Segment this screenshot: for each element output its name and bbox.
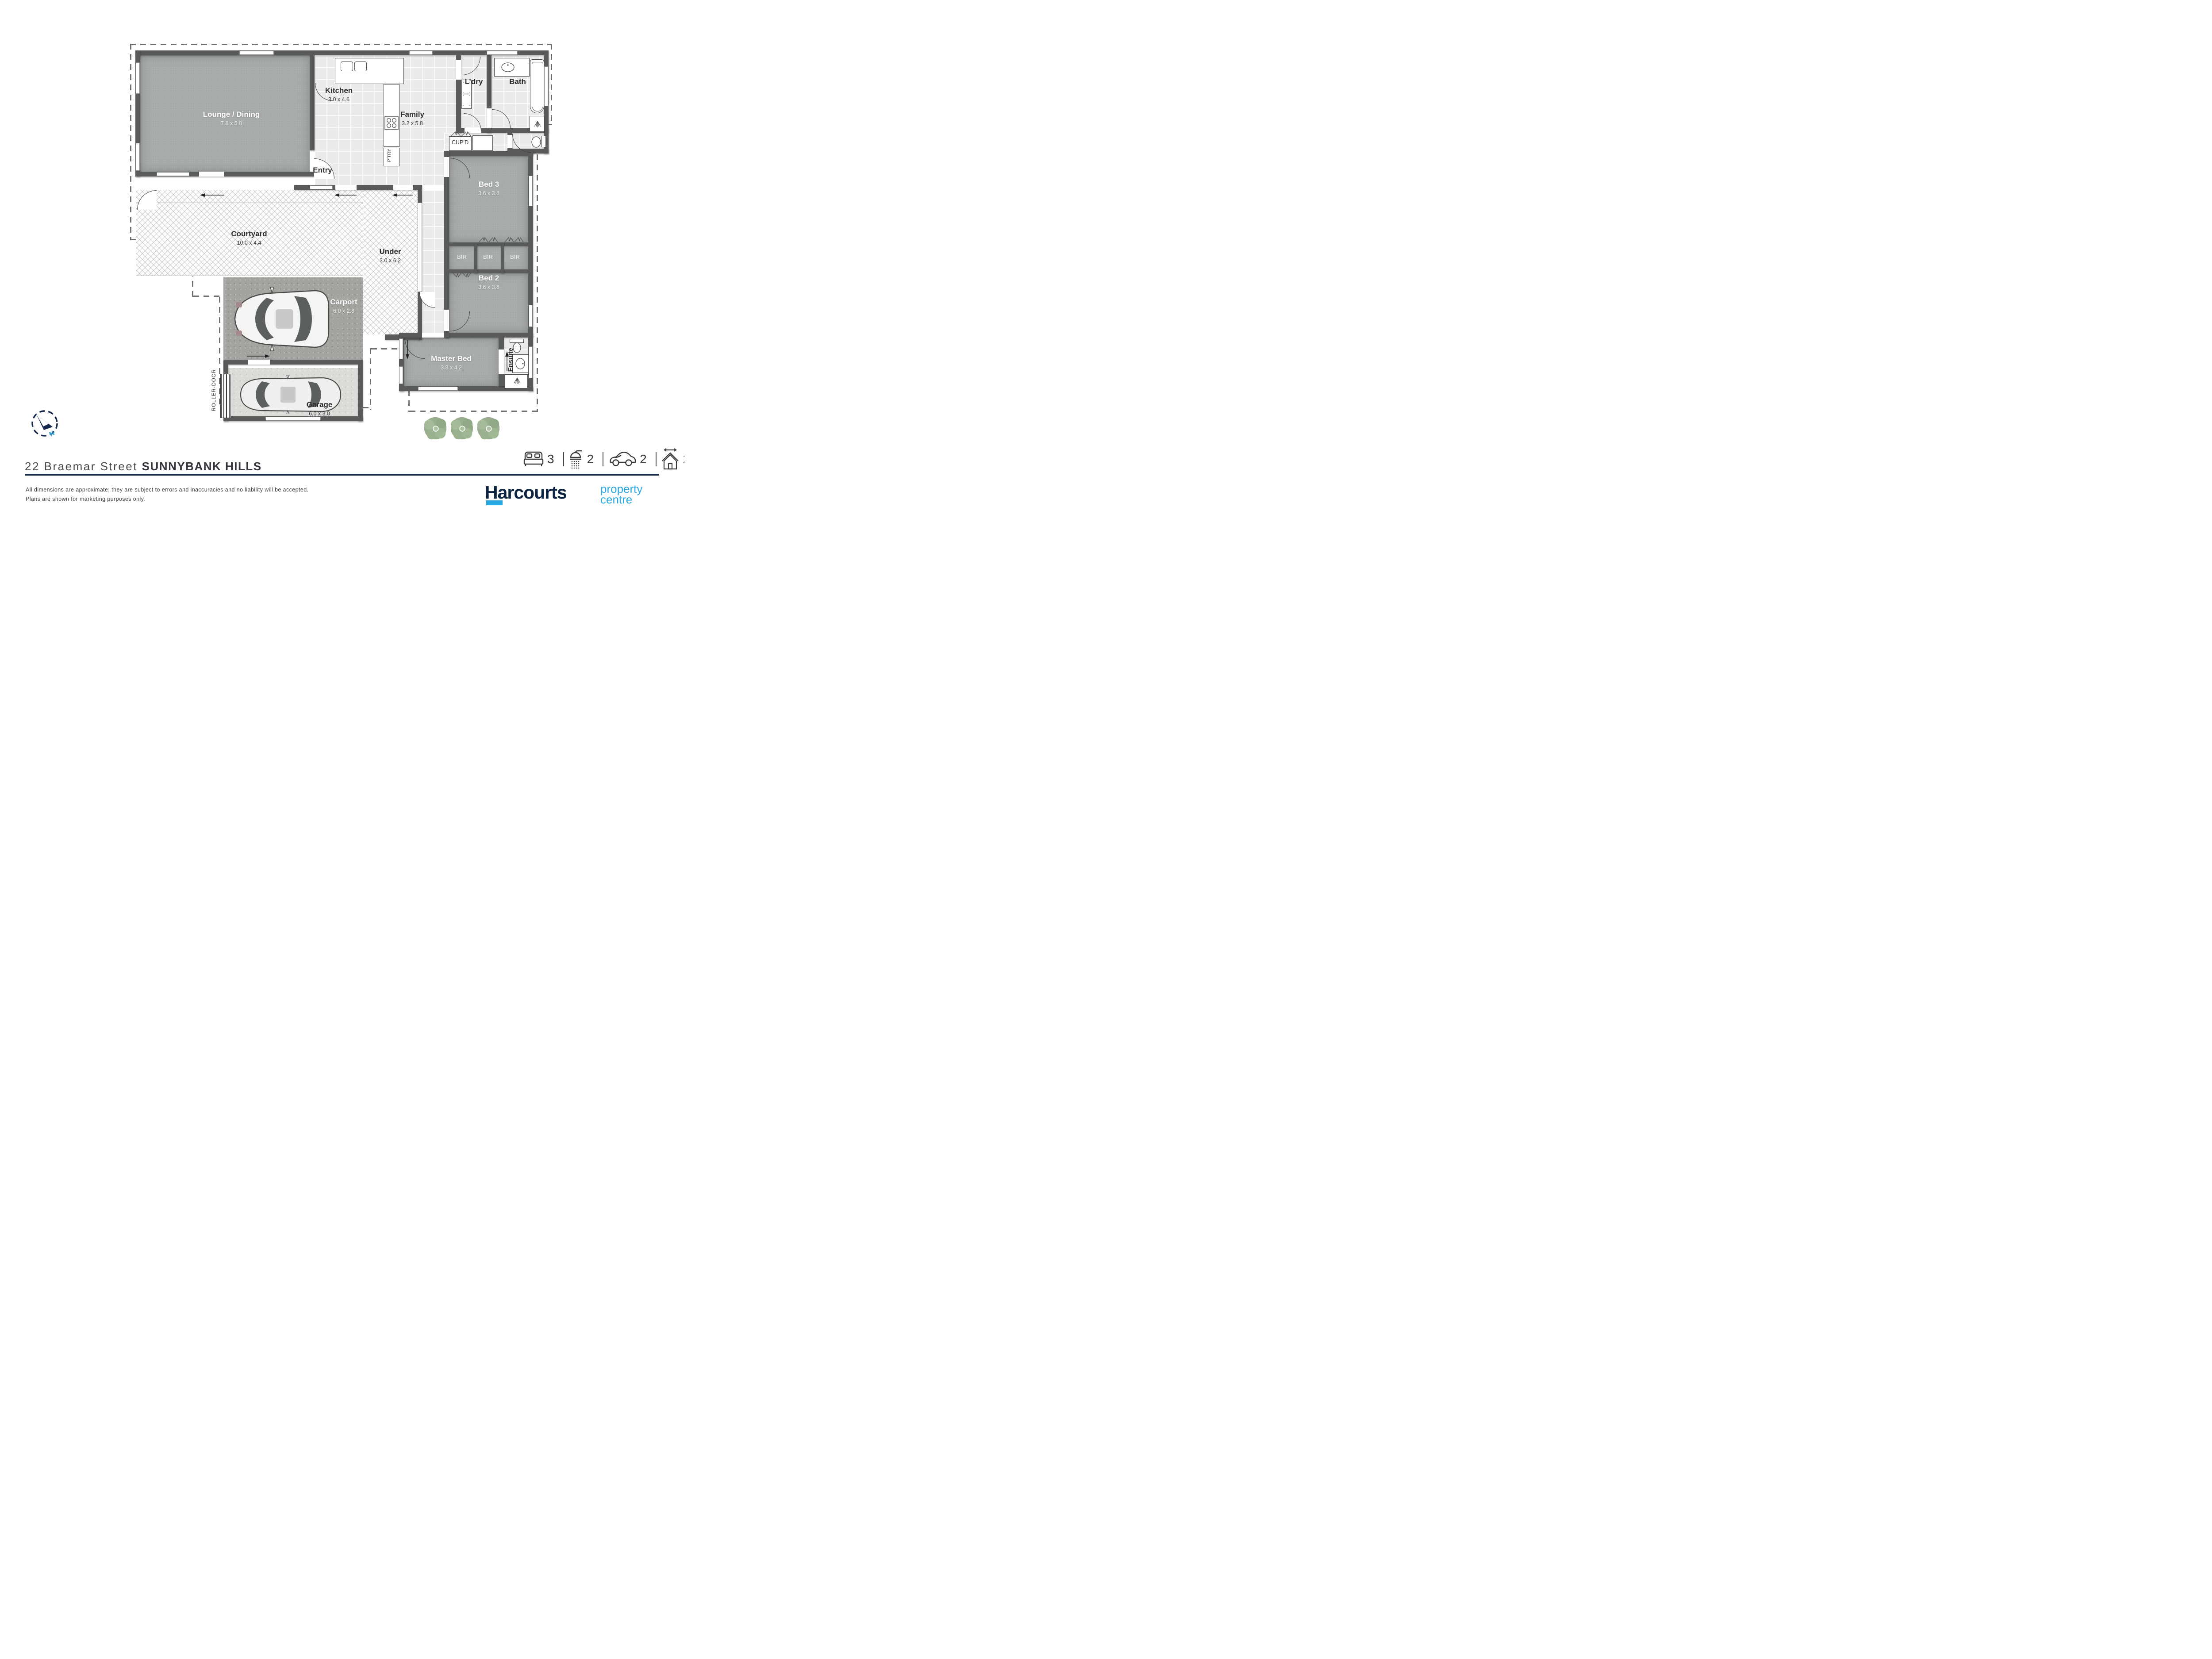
room-label-ensuite: Ensuite bbox=[507, 348, 515, 372]
door-gap-wc bbox=[507, 135, 512, 148]
room-label-family: Family3.2 x 5.8 bbox=[400, 111, 424, 127]
door-gap-bed2 bbox=[444, 310, 449, 331]
door-gap-entry bbox=[335, 185, 357, 190]
wall-bir-sep bbox=[474, 242, 477, 273]
shower-icon bbox=[568, 450, 584, 469]
hall-floor bbox=[422, 190, 444, 333]
stove-icon bbox=[384, 116, 399, 130]
wall-bir-top bbox=[449, 242, 528, 246]
brand-logo-block bbox=[486, 500, 503, 505]
window-master bbox=[399, 366, 403, 384]
wall-garage-east bbox=[358, 365, 363, 421]
room-label-bed3: Bed 33.6 x 3.8 bbox=[478, 180, 499, 197]
ensuite-basin-icon bbox=[515, 357, 526, 370]
window-bed2 bbox=[529, 305, 533, 327]
label-bir: BIR bbox=[483, 254, 493, 260]
area-value: 266m2 bbox=[683, 452, 684, 466]
bifold-marks bbox=[479, 237, 498, 242]
address-suburb: SUNNYBANK HILLS bbox=[142, 460, 262, 473]
slide-arrow-left bbox=[392, 193, 413, 197]
wall-bed2-south bbox=[444, 333, 533, 338]
slide-arrow-right bbox=[247, 354, 270, 358]
floor-plan: P’TRY ROLLER-DOOR bbox=[0, 0, 684, 447]
car-icon bbox=[608, 452, 636, 467]
stats-divider bbox=[603, 452, 603, 466]
boundary-top bbox=[130, 44, 552, 45]
window bbox=[310, 185, 333, 189]
window bbox=[487, 51, 518, 55]
area-icon bbox=[661, 448, 680, 470]
address-street: 22 Braemar Street bbox=[25, 460, 138, 473]
ensuite-shower-head-icon bbox=[512, 376, 522, 386]
kitchen-sink bbox=[354, 61, 367, 71]
kitchen-sink bbox=[341, 61, 353, 71]
room-label-entry: Entry bbox=[313, 166, 332, 175]
baths-count: 2 bbox=[587, 452, 594, 466]
boundary-bottom-right bbox=[410, 411, 538, 412]
door-gap-ensuite bbox=[499, 349, 504, 374]
window-master-south bbox=[418, 387, 458, 391]
boundary-left bbox=[130, 44, 131, 240]
pantry-label: P’TRY bbox=[387, 149, 392, 162]
room-label-laundry: L’dry bbox=[465, 78, 483, 86]
kitchen-bench bbox=[384, 84, 399, 147]
ensuite-cistern bbox=[510, 339, 524, 343]
bath-basin-icon bbox=[500, 61, 516, 73]
room-label-lounge: Lounge / Dining7.8 x 5.8 bbox=[203, 111, 260, 127]
room-label-master: Master Bed3.8 x 4.2 bbox=[431, 355, 472, 371]
slide-arrow-left bbox=[200, 193, 224, 197]
door-gap bbox=[199, 172, 224, 177]
property-stats: 3 2 2 266m2 bbox=[523, 450, 684, 468]
boundary-seg bbox=[370, 348, 371, 410]
brand-logo-harcourts: Harcourts bbox=[485, 482, 567, 503]
room-label-kitchen: Kitchen3.0 x 4.6 bbox=[325, 87, 353, 103]
door-gap-bath bbox=[487, 108, 492, 128]
label-under: Under3.0 x 6.2 bbox=[379, 248, 401, 264]
door-gap-laundry bbox=[456, 60, 461, 80]
bifold-marks bbox=[450, 131, 472, 137]
footer-divider bbox=[25, 474, 659, 476]
cars-count: 2 bbox=[640, 452, 647, 466]
stats-divider bbox=[563, 452, 564, 466]
window-master bbox=[399, 338, 403, 359]
linen-box bbox=[472, 135, 493, 151]
room-label-bed2: Bed 23.6 x 3.8 bbox=[478, 274, 499, 291]
tree-icon bbox=[422, 414, 449, 443]
slide-arrow-left bbox=[334, 193, 357, 197]
label-garage: Garage6.0 x 3.0 bbox=[307, 401, 333, 417]
window bbox=[157, 172, 189, 176]
brand-logo-centre: centre bbox=[600, 493, 632, 507]
wall-bir-sep bbox=[501, 242, 504, 273]
bifold-marks bbox=[504, 237, 524, 242]
shower-head-icon bbox=[533, 119, 542, 129]
floor-plan-page: P’TRY ROLLER-DOOR bbox=[0, 0, 684, 513]
roller-door bbox=[220, 374, 231, 418]
wall-bed3-north bbox=[444, 151, 533, 156]
wc-toilet-icon bbox=[531, 136, 542, 148]
door-gap-master bbox=[422, 333, 444, 338]
window-hall bbox=[418, 203, 422, 292]
bifold-marks bbox=[452, 272, 472, 277]
compass-icon bbox=[29, 409, 61, 441]
label-courtyard: Courtyard10.0 x 4.4 bbox=[231, 230, 267, 246]
label-bir: BIR bbox=[457, 254, 467, 260]
window bbox=[409, 51, 433, 55]
window bbox=[136, 62, 140, 94]
boundary-right-lower bbox=[537, 124, 538, 412]
bathtub-inner bbox=[532, 62, 543, 111]
wall-lounge-kitchen bbox=[310, 55, 315, 150]
carport-car bbox=[228, 284, 330, 353]
tree-icon bbox=[475, 414, 502, 443]
label-bir: BIR bbox=[510, 254, 520, 260]
window bbox=[136, 143, 140, 171]
bed-icon bbox=[523, 451, 544, 467]
room-label-bath: Bath bbox=[509, 78, 526, 86]
beds-count: 3 bbox=[547, 452, 554, 466]
property-address: 22 Braemar Street SUNNYBANK HILLS bbox=[25, 460, 262, 473]
window bbox=[239, 51, 274, 55]
roller-door-label: ROLLER-DOOR bbox=[211, 369, 217, 411]
boundary-seg bbox=[193, 296, 220, 297]
disclaimer-line2: Plans are shown for marketing purposes o… bbox=[26, 496, 145, 502]
boundary-right-upper bbox=[551, 44, 552, 125]
window-bed3 bbox=[529, 176, 533, 206]
label-cupboard: CUP’D bbox=[452, 140, 469, 146]
label-carport: Carport6.0 x 2.8 bbox=[330, 298, 357, 315]
stats-divider bbox=[656, 452, 657, 466]
wall-carport-garage bbox=[223, 360, 363, 365]
slide-arrow-down bbox=[405, 340, 410, 359]
window bbox=[544, 66, 548, 106]
disclaimer-line1: All dimensions are approximate; they are… bbox=[26, 487, 308, 493]
window-ensuite bbox=[529, 346, 533, 378]
tree-icon bbox=[448, 414, 476, 443]
door-gap-garage bbox=[248, 360, 270, 365]
door-gap-bed3 bbox=[444, 157, 449, 177]
door-gap bbox=[393, 185, 413, 190]
laundry-tub-basin bbox=[463, 95, 470, 106]
